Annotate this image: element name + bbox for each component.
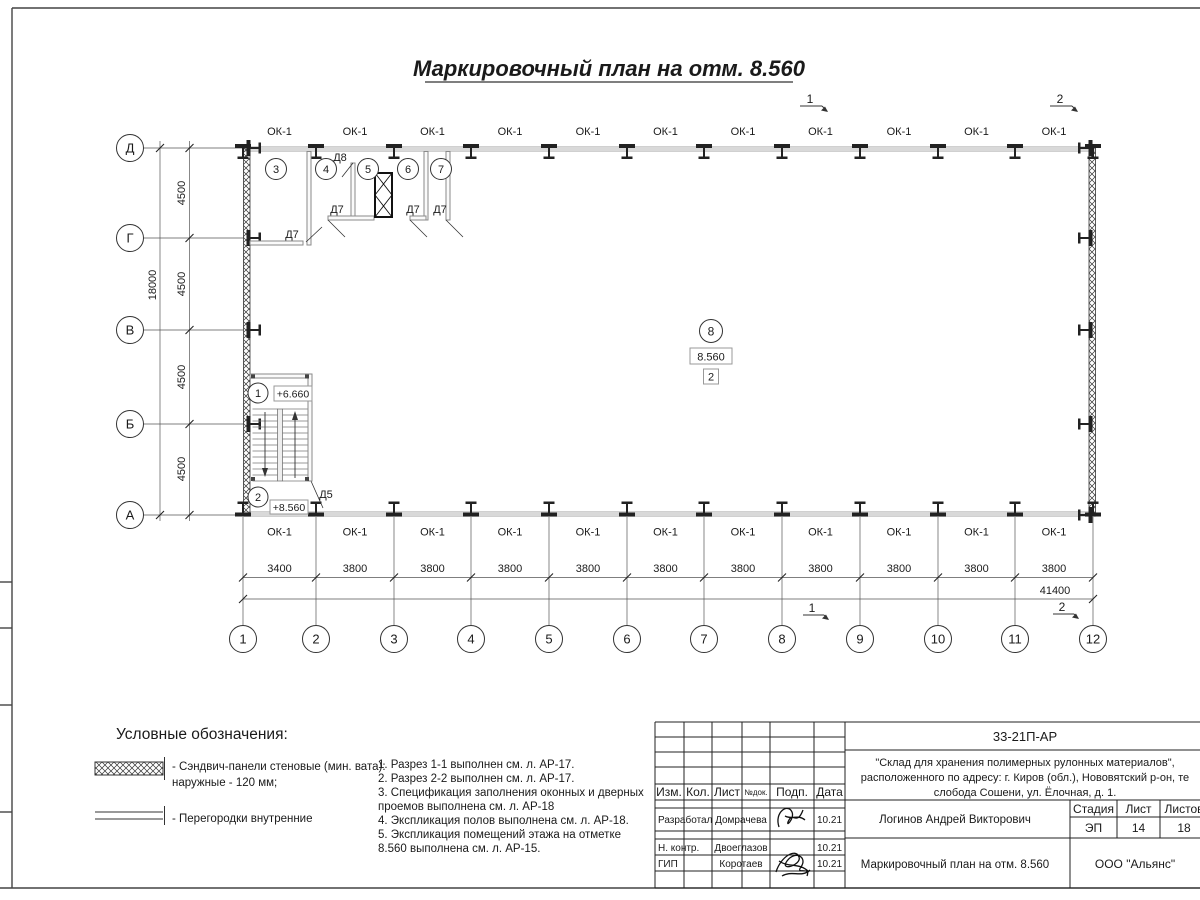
- legend-item1-line2: наружные - 120 мм;: [172, 777, 277, 789]
- dim-col-8: 3800: [808, 563, 832, 575]
- dim-row-4: 4500: [176, 457, 188, 481]
- drawing-sheet: Маркировочный план на отм. 8.560 Д Г В Б…: [0, 0, 1200, 900]
- legend-sandwich-swatch: [95, 762, 163, 775]
- window-mark: ОК-1: [731, 527, 756, 539]
- axis-8: 8: [778, 632, 785, 647]
- window-mark: ОК-1: [267, 126, 292, 138]
- tb-date-gip: 10.21: [817, 859, 842, 870]
- tb-sheets-value: 18: [1177, 821, 1191, 835]
- axis-7: 7: [700, 632, 707, 647]
- signatures: [776, 808, 810, 876]
- room-7: 7: [438, 164, 444, 176]
- legend-item2: - Перегородки внутренние: [172, 813, 313, 825]
- dim-row-total: 18000: [147, 270, 159, 301]
- tb-sheet-label: Лист: [1125, 802, 1152, 816]
- row-dim-labels: 18000 4500 4500 4500 4500: [147, 181, 188, 481]
- tb-header-podp: Подп.: [776, 785, 808, 799]
- axis-9: 9: [856, 632, 863, 647]
- tb-name-ncontrol: Двоеглазов: [714, 843, 767, 854]
- tb-header-data: Дата: [816, 785, 843, 799]
- axis-label-d: Д: [126, 141, 135, 156]
- tb-header-kol: Кол.: [686, 785, 710, 799]
- tb-doc-title: Маркировочный план на отм. 8.560: [861, 859, 1049, 871]
- note-line: 3. Спецификация заполнения оконных и две…: [378, 787, 644, 799]
- note-line: 5. Экспликация помещений этажа на отметк…: [378, 829, 621, 841]
- window-mark: ОК-1: [576, 126, 601, 138]
- axis-label-a: А: [126, 508, 135, 523]
- axis-4: 4: [467, 632, 474, 647]
- tb-project-line2: расположенного по адресу: г. Киров (обл.…: [861, 772, 1189, 784]
- hall-labels: 8 8.560 2: [690, 320, 732, 385]
- door-mark-d7: Д7: [406, 204, 420, 216]
- window-mark: ОК-1: [808, 527, 833, 539]
- tb-stage-label: Стадия: [1073, 802, 1114, 816]
- tb-project-line3: слобода Сошени, ул. Ёлочная, д. 1.: [934, 787, 1117, 799]
- note-line: 4. Экспликация полов выполнена см. л. АР…: [378, 815, 629, 827]
- col-axis-bubbles: 1 2 3 4 5 6 7 8 9 10 11 12: [230, 626, 1107, 653]
- dim-row-3: 4500: [176, 365, 188, 389]
- window-mark: ОК-1: [964, 126, 989, 138]
- notes: 1. Разрез 1-1 выполнен см. л. АР-17. 2. …: [378, 759, 644, 855]
- signature-gip: [776, 853, 810, 876]
- axis-10: 10: [931, 632, 945, 647]
- window-mark: ОК-1: [267, 527, 292, 539]
- section-2-top: 2: [1057, 92, 1064, 106]
- axis-label-g: Г: [126, 231, 133, 246]
- dim-row-1: 4500: [176, 181, 188, 205]
- elevation-upper: +6.660: [277, 389, 310, 401]
- window-mark: ОК-1: [887, 126, 912, 138]
- room-8: 8: [708, 325, 715, 339]
- section-1-top: 1: [807, 92, 814, 106]
- axis-label-b: Б: [126, 417, 135, 432]
- window-mark: ОК-1: [653, 126, 678, 138]
- window-mark: ОК-1: [1042, 527, 1067, 539]
- hall-zone: 2: [708, 372, 714, 384]
- top-wall: [244, 147, 1096, 152]
- dim-row-2: 4500: [176, 272, 188, 296]
- note-line: 2. Разрез 2-2 выполнен см. л. АР-17.: [378, 773, 575, 785]
- window-mark: ОК-1: [576, 527, 601, 539]
- room-1: 1: [255, 388, 261, 400]
- window-mark: ОК-1: [343, 126, 368, 138]
- signature-developer: [778, 808, 805, 827]
- tb-role-ncontrol: Н. контр.: [658, 843, 699, 854]
- room-3: 3: [273, 164, 279, 176]
- tb-role-gip: ГИП: [658, 859, 678, 870]
- window-mark: ОК-1: [498, 527, 523, 539]
- tb-name-developer: Домрачева: [715, 815, 767, 826]
- tb-company: ООО "Альянс": [1095, 857, 1175, 871]
- legend-heading: Условные обозначения:: [116, 726, 288, 743]
- axis-6: 6: [623, 632, 630, 647]
- window-mark: ОК-1: [653, 527, 678, 539]
- drawing-title: Маркировочный план на отм. 8.560: [413, 56, 806, 82]
- dim-col-7: 3800: [731, 563, 755, 575]
- dim-col-9: 3800: [887, 563, 911, 575]
- exterior-walls: [244, 147, 1096, 517]
- plan-drawing: Маркировочный план на отм. 8.560 Д Г В Б…: [0, 0, 1200, 900]
- window-mark: ОК-1: [498, 126, 523, 138]
- tb-sheets-label: Листов: [1165, 802, 1200, 816]
- row-axis-bubbles: Д Г В Б А: [117, 135, 144, 529]
- row-axes: [144, 141, 244, 521]
- window-mark: ОК-1: [887, 527, 912, 539]
- door-mark-d7: Д7: [433, 204, 447, 216]
- axis-label-v: В: [126, 323, 135, 338]
- legend: Условные обозначения: - Сэндвич-панели с…: [95, 726, 386, 825]
- elevator-shaft: [375, 173, 392, 217]
- section-marks-bottom: 1 2: [803, 600, 1079, 620]
- window-mark: ОК-1: [964, 527, 989, 539]
- legend-partition-swatch: [95, 806, 165, 825]
- dim-col-3: 3800: [420, 563, 444, 575]
- axis-12: 12: [1086, 632, 1100, 647]
- dim-col-11: 3800: [1042, 563, 1066, 575]
- note-line: проемов выполнена см. л. АР-18: [378, 801, 554, 813]
- tb-header-izm: Изм.: [656, 785, 682, 799]
- tb-project-line1: "Склад для хранения полимерных рулонных …: [875, 757, 1174, 769]
- tb-chief-name: Логинов Андрей Викторович: [879, 814, 1031, 826]
- window-mark: ОК-1: [1042, 126, 1067, 138]
- window-mark: ОК-1: [420, 126, 445, 138]
- dim-col-5: 3800: [576, 563, 600, 575]
- room-2: 2: [255, 492, 261, 504]
- window-marks-bottom: ОК-1 ОК-1 ОК-1 ОК-1 ОК-1 ОК-1 ОК-1 ОК-1 …: [267, 527, 1066, 539]
- page-title: Маркировочный план на отм. 8.560: [413, 56, 806, 81]
- col-dim-ticks: [239, 574, 1097, 604]
- hall-elevation: 8.560: [697, 352, 725, 364]
- section-marks-top: 1 2: [800, 92, 1078, 112]
- dim-col-1: 3400: [267, 563, 291, 575]
- dim-col-2: 3800: [343, 563, 367, 575]
- tb-project-code: 33-21П-АР: [993, 729, 1057, 744]
- tb-header-list: Лист: [714, 785, 741, 799]
- legend-item1-line1: - Сэндвич-панели стеновые (мин. вата):: [172, 761, 386, 773]
- room-6: 6: [405, 164, 411, 176]
- tb-date-ncontrol: 10.21: [817, 843, 842, 854]
- sheet-frame: [0, 8, 1200, 888]
- axis-2: 2: [312, 632, 319, 647]
- axis-3: 3: [390, 632, 397, 647]
- section-1-bottom: 1: [809, 601, 816, 615]
- dim-col-10: 3800: [964, 563, 988, 575]
- section-2-bottom: 2: [1059, 600, 1066, 614]
- window-mark: ОК-1: [420, 527, 445, 539]
- elevation-lower: +8.560: [273, 502, 306, 514]
- door-mark-d7: Д7: [330, 204, 344, 216]
- note-line: 1. Разрез 1-1 выполнен см. л. АР-17.: [378, 759, 575, 771]
- window-mark: ОК-1: [808, 126, 833, 138]
- window-marks-top: ОК-1 ОК-1 ОК-1 ОК-1 ОК-1 ОК-1 ОК-1 ОК-1 …: [267, 126, 1066, 138]
- dim-col-total: 41400: [1040, 585, 1071, 597]
- dim-col-4: 3800: [498, 563, 522, 575]
- tb-sheet-value: 14: [1132, 821, 1146, 835]
- window-mark: ОК-1: [731, 126, 756, 138]
- door-mark-d5: Д5: [319, 489, 333, 501]
- tb-date-developer: 10.21: [817, 815, 842, 826]
- door-mark-d7: Д7: [285, 229, 299, 241]
- axis-5: 5: [545, 632, 552, 647]
- col-dim-labels: 3400 3800 3800 3800 3800 3800 3800 3800 …: [267, 563, 1070, 597]
- door-mark-d8: Д8: [333, 152, 347, 164]
- dim-col-6: 3800: [653, 563, 677, 575]
- room-5: 5: [365, 164, 371, 176]
- tb-name-gip: Коротаев: [719, 859, 762, 870]
- room-4: 4: [323, 164, 329, 176]
- axis-1: 1: [239, 632, 246, 647]
- bottom-wall: [244, 512, 1096, 517]
- note-line: 8.560 выполнена см. л. АР-15.: [378, 843, 540, 855]
- tb-role-developer: Разработал: [658, 814, 713, 826]
- tb-stage-value: ЭП: [1085, 821, 1102, 835]
- window-mark: ОК-1: [343, 527, 368, 539]
- tb-header-ndoc: №док.: [744, 788, 767, 797]
- axis-11: 11: [1008, 632, 1022, 647]
